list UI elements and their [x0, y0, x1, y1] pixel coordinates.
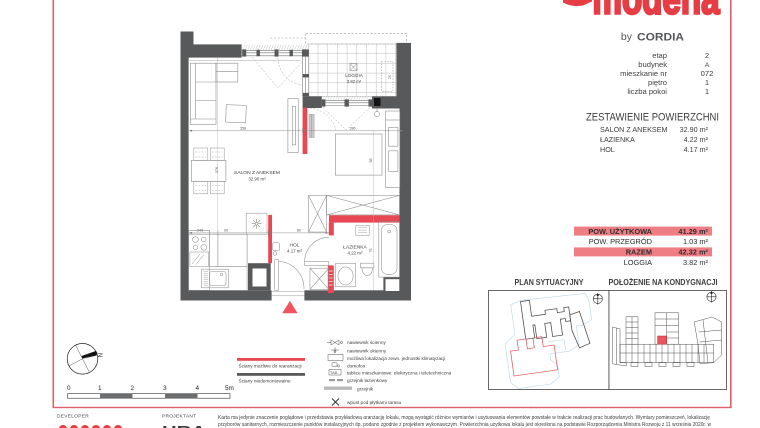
svg-text:RAZEM: RAZEM — [626, 248, 652, 257]
svg-text:modena: modena — [593, 0, 720, 24]
svg-text:4.22 m²: 4.22 m² — [348, 251, 363, 256]
svg-text:376: 376 — [215, 167, 219, 173]
svg-text:32.90 m²: 32.90 m² — [248, 177, 266, 182]
svg-text:4.22 m²: 4.22 m² — [684, 135, 709, 144]
svg-text:nawiewnik ścienny: nawiewnik ścienny — [347, 340, 386, 345]
svg-text:liczba pokoi: liczba pokoi — [627, 87, 667, 96]
svg-text:90: 90 — [224, 228, 228, 232]
svg-text:HRA: HRA — [162, 423, 206, 428]
svg-text:piętro: piętro — [648, 78, 667, 87]
svg-text:tablice mieszkaniowe: elektryc: tablice mieszkaniowe: elektryczna i tele… — [347, 371, 452, 376]
svg-text:358: 358 — [240, 126, 246, 130]
svg-text:przyborów sanitarnych, rozmies: przyborów sanitarnych, rozmieszczenie pu… — [218, 422, 711, 428]
svg-text:1.03 m²: 1.03 m² — [683, 237, 709, 246]
svg-text:ZK: ZK — [388, 74, 392, 79]
svg-text:mieszkanie nr: mieszkanie nr — [620, 69, 667, 78]
svg-text:3: 3 — [163, 385, 167, 392]
svg-text:4.17 m²: 4.17 m² — [287, 249, 302, 254]
svg-text:Ściany niedemontowalne: Ściany niedemontowalne — [239, 377, 292, 384]
svg-text:A: A — [705, 62, 710, 69]
svg-text:SALON Z ANEKSEM: SALON Z ANEKSEM — [234, 170, 280, 176]
svg-text:072: 072 — [701, 69, 714, 78]
svg-text:by: by — [621, 31, 633, 43]
svg-text:Ściany możliwe do rearanżacji: Ściany możliwe do rearanżacji — [239, 362, 302, 369]
svg-text:Karta ma jedynie znaczenie pog: Karta ma jedynie znaczenie poglądowe i p… — [218, 415, 710, 421]
svg-text:budynek: budynek — [638, 60, 667, 69]
svg-text:PROJEKTANT: PROJEKTANT — [162, 414, 196, 420]
svg-text:PLAN SYTUACYJNY: PLAN SYTUACYJNY — [515, 278, 584, 287]
svg-text:ZESTAWIENIE POWIERZCHNI: ZESTAWIENIE POWIERZCHNI — [586, 112, 719, 124]
svg-text:LOGGIA: LOGGIA — [624, 258, 652, 267]
svg-text:41.29 m²: 41.29 m² — [678, 227, 708, 236]
svg-text:HOL: HOL — [600, 145, 615, 154]
svg-text:1: 1 — [98, 385, 102, 392]
svg-text:2: 2 — [131, 385, 135, 392]
svg-text:286: 286 — [350, 126, 356, 130]
svg-text:32.90 m²: 32.90 m² — [680, 125, 709, 134]
svg-text:249: 249 — [197, 228, 203, 232]
svg-text:nawiewnik okienny: nawiewnik okienny — [347, 349, 387, 354]
svg-text:2: 2 — [705, 51, 709, 60]
svg-text:możliwa lokalizacja zewn. jedn: możliwa lokalizacja zewn. jednostki klim… — [347, 356, 445, 361]
svg-text:1: 1 — [705, 78, 709, 87]
svg-text:DEVELOPER: DEVELOPER — [57, 414, 89, 420]
svg-text:5m: 5m — [225, 385, 234, 392]
svg-text:42.32 m²: 42.32 m² — [678, 248, 708, 257]
svg-text:grzejnik łazienkowy: grzejnik łazienkowy — [347, 378, 388, 383]
svg-text:TAB: TAB — [330, 370, 338, 375]
svg-text:4.17 m²: 4.17 m² — [684, 145, 709, 154]
svg-text:80: 80 — [297, 228, 301, 232]
svg-text:LOGGIA: LOGGIA — [345, 73, 364, 78]
svg-text:4: 4 — [196, 385, 200, 392]
svg-text:POW. UŻYTKOWA: POW. UŻYTKOWA — [588, 227, 652, 236]
svg-text:etap: etap — [652, 51, 667, 60]
svg-text:domofon: domofon — [347, 364, 366, 369]
svg-text:SALON Z ANEKSEM: SALON Z ANEKSEM — [600, 125, 668, 134]
svg-text:1: 1 — [705, 87, 709, 96]
svg-text:N: N — [96, 353, 102, 357]
svg-text:75: 75 — [369, 249, 373, 253]
svg-text:ŁAZIENKA: ŁAZIENKA — [600, 135, 635, 144]
svg-text:0: 0 — [67, 385, 71, 392]
svg-text:3.82 m²: 3.82 m² — [347, 79, 362, 84]
svg-text:3.82 m²: 3.82 m² — [683, 258, 709, 267]
svg-text:wpust pod płytkami tarasu: wpust pod płytkami tarasu — [347, 400, 402, 405]
svg-text:58: 58 — [369, 159, 373, 163]
svg-text:CORDIA: CORDIA — [637, 32, 684, 44]
svg-text:grzejnik: grzejnik — [357, 387, 374, 392]
svg-text:POW. PRZEGRÓD: POW. PRZEGRÓD — [589, 237, 652, 246]
svg-text:POŁOŻENIE NA KONDYGNACJI: POŁOŻENIE NA KONDYGNACJI — [609, 277, 718, 287]
